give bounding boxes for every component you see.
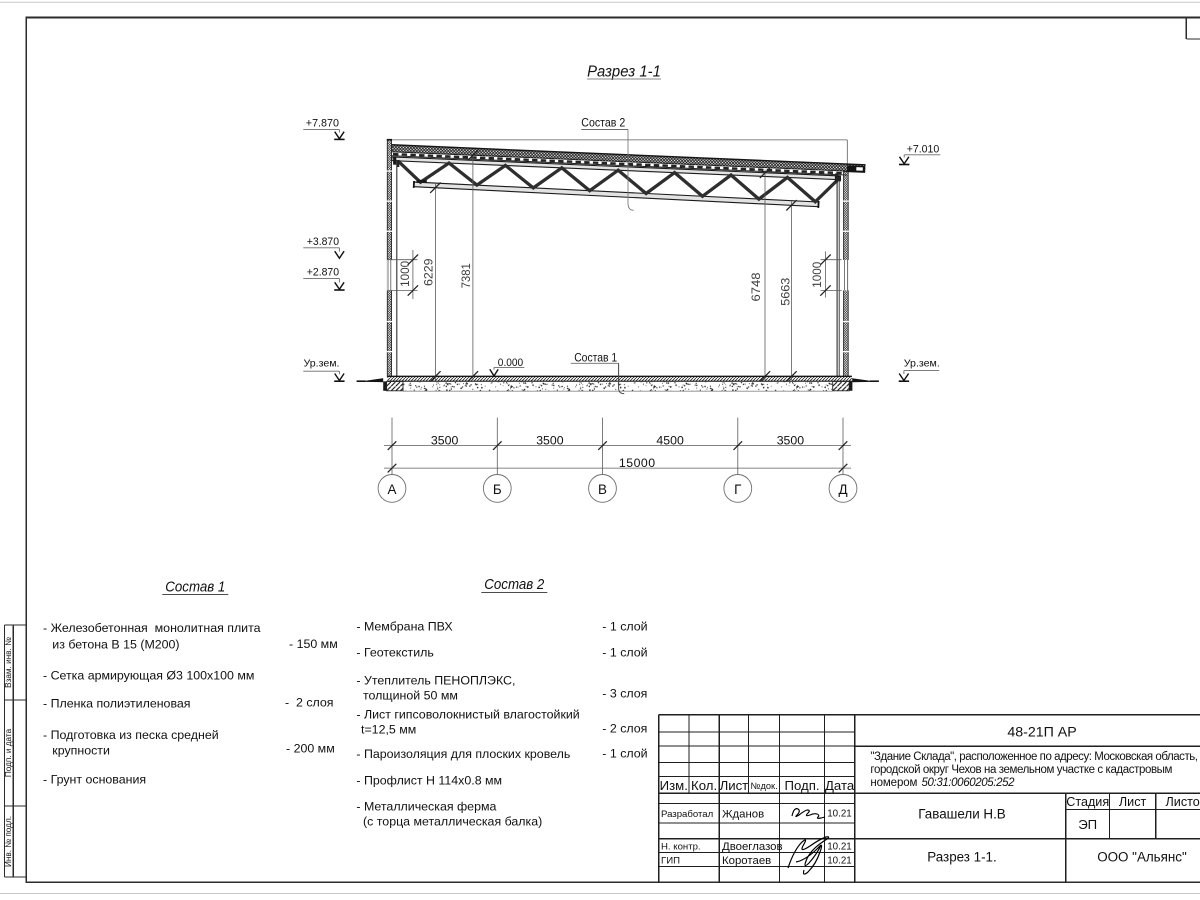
- svg-text:+7.870: +7.870: [306, 118, 339, 130]
- svg-text:6229: 6229: [422, 258, 436, 286]
- svg-text:Лист: Лист: [720, 778, 749, 793]
- svg-text:+2.870: +2.870: [307, 266, 339, 278]
- svg-text:t=12,5 мм: t=12,5 мм: [361, 723, 416, 737]
- svg-text:Лист: Лист: [1119, 795, 1147, 809]
- svg-text:3500: 3500: [431, 434, 459, 448]
- svg-text:Взам. инв. №: Взам. инв. №: [4, 637, 13, 688]
- svg-text:ЭП: ЭП: [1078, 817, 1097, 832]
- svg-text:- 200 мм: - 200 мм: [286, 742, 335, 756]
- svg-text:- 2 слоя: - 2 слоя: [285, 696, 334, 710]
- svg-text:48-21П АР: 48-21П АР: [1007, 724, 1076, 740]
- svg-text:А: А: [388, 482, 397, 497]
- svg-text:Подп.: Подп.: [784, 778, 819, 793]
- svg-text:Состав 2: Состав 2: [484, 577, 544, 593]
- svg-text:- Мембрана ПВХ: - Мембрана ПВХ: [356, 620, 452, 634]
- svg-text:+3.870: +3.870: [307, 236, 339, 248]
- svg-text:- Железобетонная монолитная п: - Железобетонная монолитная плита: [43, 621, 261, 635]
- svg-text:из бетона В 15 (М200): из бетона В 15 (М200): [52, 638, 179, 652]
- svg-text:- 1 слой: - 1 слой: [602, 646, 647, 660]
- svg-text:Б: Б: [493, 482, 502, 497]
- svg-text:- Металлическая ферма: - Металлическая ферма: [356, 800, 496, 814]
- svg-text:- Пленка полиэтиленовая: - Пленка полиэтиленовая: [43, 696, 191, 710]
- svg-text:- 1 слой: - 1 слой: [602, 746, 647, 760]
- svg-text:10.21: 10.21: [827, 856, 852, 867]
- svg-text:- 150 мм: - 150 мм: [289, 637, 338, 651]
- svg-text:Разрез 1-1.: Разрез 1-1.: [927, 849, 996, 864]
- svg-text:- Профлист Н 114х0.8 мм: - Профлист Н 114х0.8 мм: [356, 773, 502, 787]
- svg-text:крупности: крупности: [52, 743, 110, 757]
- svg-text:ГИП: ГИП: [661, 856, 680, 867]
- svg-text:Разрез 1-1: Разрез 1-1: [587, 64, 661, 81]
- svg-text:10.21: 10.21: [827, 841, 852, 852]
- svg-text:- Утеплитель ПЕНОПЛЭКС,: - Утеплитель ПЕНОПЛЭКС,: [356, 673, 515, 687]
- svg-text:Инв. № подл.: Инв. № подл.: [4, 816, 13, 867]
- svg-text:Ур.зем.: Ур.зем.: [304, 358, 340, 369]
- svg-text:Д: Д: [838, 482, 847, 497]
- svg-text:толщиной 50 мм: толщиной 50 мм: [363, 688, 458, 702]
- svg-text:- Пароизоляция для плоских кро: - Пароизоляция для плоских кровель: [356, 747, 570, 761]
- svg-text:Состав 1: Состав 1: [165, 580, 225, 596]
- svg-text:Дата: Дата: [825, 778, 855, 793]
- svg-text:- 3 слоя: - 3 слоя: [602, 687, 647, 701]
- svg-text:Двоеглазов: Двоеглазов: [722, 841, 783, 853]
- svg-text:5663: 5663: [778, 277, 792, 305]
- svg-text:3500: 3500: [777, 434, 805, 448]
- svg-text:- 1 слой: - 1 слой: [602, 620, 647, 634]
- svg-text:1000: 1000: [398, 261, 412, 287]
- svg-text:4500: 4500: [656, 434, 684, 448]
- svg-text:городской округ Чехов на земел: городской округ Чехов на земельном участ…: [870, 764, 1172, 776]
- svg-text:Коротаев: Коротаев: [722, 855, 771, 867]
- svg-text:6748: 6748: [749, 272, 763, 301]
- svg-text:Кол.: Кол.: [691, 778, 717, 793]
- svg-text:Стадия: Стадия: [1066, 795, 1109, 809]
- svg-text:- Подготовка из песка средней: - Подготовка из песка средней: [43, 728, 219, 742]
- svg-text:Состав 2: Состав 2: [581, 115, 625, 129]
- svg-text:15000: 15000: [619, 456, 655, 470]
- svg-text:"Здание Склада", расположенное: "Здание Склада", расположенное по адресу…: [870, 751, 1198, 763]
- svg-text:Г: Г: [734, 482, 741, 497]
- svg-text:1000: 1000: [810, 261, 824, 287]
- svg-text:+7.010: +7.010: [907, 143, 940, 155]
- svg-text:В: В: [598, 482, 607, 497]
- svg-text:- Грунт основания: - Грунт основания: [43, 772, 146, 786]
- svg-text:(с торца металлическая балка): (с торца металлическая балка): [363, 815, 542, 829]
- svg-text:50:31:0060205:252: 50:31:0060205:252: [922, 777, 1016, 789]
- svg-text:- 2 слоя: - 2 слоя: [602, 721, 647, 735]
- svg-text:Разработал: Разработал: [661, 809, 713, 820]
- svg-text:10.21: 10.21: [827, 809, 852, 820]
- svg-text:Гавашели Н.В: Гавашели Н.В: [918, 806, 1006, 821]
- svg-text:Листов: Листов: [1166, 795, 1200, 809]
- svg-text:Состав 1: Состав 1: [574, 350, 617, 364]
- svg-text:3500: 3500: [536, 434, 564, 448]
- svg-text:Ур.зем.: Ур.зем.: [904, 358, 940, 369]
- svg-text:Изм.: Изм.: [660, 778, 688, 793]
- svg-text:- Сетка армирующая Ø3 100х100: - Сетка армирующая Ø3 100х100 мм: [43, 668, 254, 682]
- svg-text:Н. контр.: Н. контр.: [661, 842, 701, 853]
- svg-text:№док.: №док.: [750, 781, 777, 791]
- svg-text:- Геотекстиль: - Геотекстиль: [356, 646, 433, 660]
- svg-text:Подп. и дата: Подп. и дата: [4, 728, 13, 777]
- svg-text:Жданов: Жданов: [722, 808, 764, 820]
- svg-text:- Лист гипсоволокнистый влагос: - Лист гипсоволокнистый влагостойкий: [356, 707, 579, 721]
- svg-text:ООО "Альянс": ООО "Альянс": [1097, 849, 1187, 864]
- svg-text:7381: 7381: [459, 263, 473, 289]
- svg-text:номером: номером: [870, 777, 917, 789]
